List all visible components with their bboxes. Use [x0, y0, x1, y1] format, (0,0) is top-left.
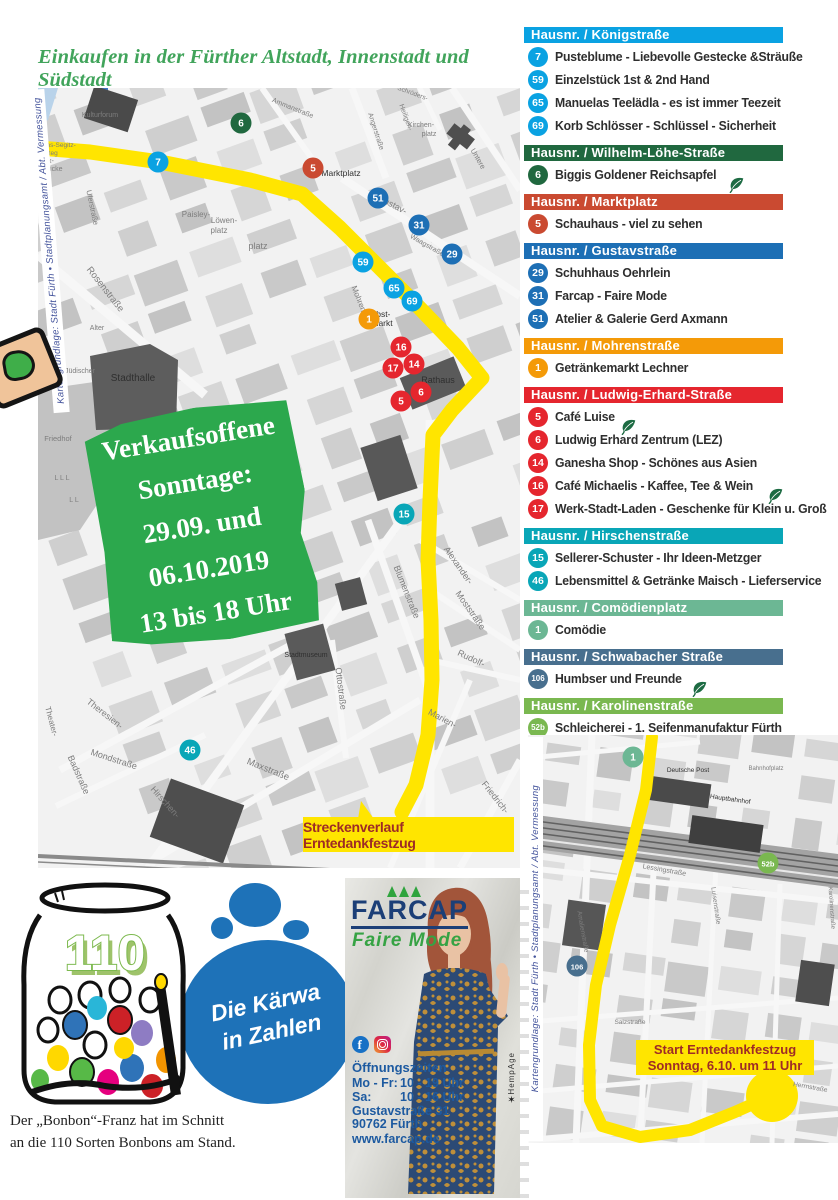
- map-marker: 6: [231, 113, 252, 134]
- legend-item-number: 16: [528, 476, 548, 496]
- street-label: L L: [69, 497, 79, 504]
- hemp-leaf-icon: ✶: [507, 1095, 515, 1106]
- svg-text:46: 46: [184, 746, 196, 757]
- promo-box: VerkaufsoffeneSonntage:29.09. und06.10.2…: [78, 393, 326, 658]
- legend-item: 7Pusteblume - Liebevolle Gestecke &Sträu…: [524, 45, 838, 68]
- map-marker: 14: [404, 354, 425, 375]
- legend-item-number: 106: [528, 669, 548, 689]
- legend-item-number: 14: [528, 453, 548, 473]
- station-map: Deutsche PostBahnhofplatzHauptbahnhofLes…: [528, 735, 838, 1143]
- legend-section-header: Hausnr. / Comödienplatz: [524, 600, 783, 616]
- map-marker: 59: [353, 252, 374, 273]
- map-credit-text: Kartengrundlage: Stadt Fürth • Stadtplan…: [530, 785, 541, 1092]
- legend-item-number: 51: [528, 309, 548, 329]
- map-marker: 65: [384, 278, 405, 299]
- map-marker: 15: [394, 504, 415, 525]
- map-marker: 51: [368, 188, 389, 209]
- legend-item: 17Werk-Stadt-Laden - Geschenke für Klein…: [524, 497, 838, 520]
- street-label: Alter: [90, 325, 105, 332]
- street-label: Stadthalle: [111, 373, 156, 384]
- street-label: platz: [248, 241, 268, 251]
- svg-text:65: 65: [388, 284, 400, 295]
- sidebar: Hausnr. / Königstraße7Pusteblume - Liebe…: [524, 27, 838, 739]
- map-marker: 1: [623, 747, 644, 768]
- caption-line2: an die 110 Sorten Bonbons am Stand.: [10, 1132, 236, 1154]
- legend-section-header: Hausnr. / Hirschenstraße: [524, 528, 783, 544]
- map-marker: 52b: [758, 853, 779, 874]
- svg-text:51: 51: [372, 194, 384, 205]
- legend-section-header: Hausnr. / Wilhelm-Löhe-Straße: [524, 145, 783, 161]
- legend-item: 69Korb Schlösser - Schlüssel - Sicherhei…: [524, 114, 838, 137]
- page-edge: [520, 878, 529, 1198]
- legend-item: 16Café Michaelis - Kaffee, Tee & Wein: [524, 474, 838, 497]
- legend-item-label: Einzelstück 1st & 2nd Hand: [555, 72, 710, 87]
- hempage-label: HempAge ✶: [507, 1052, 516, 1106]
- svg-text:52b: 52b: [762, 860, 775, 869]
- legend-item-number: 5: [528, 407, 548, 427]
- street-label: platz: [422, 131, 437, 138]
- svg-text:31: 31: [413, 221, 425, 232]
- legend-item: 65Manuelas Teelädla - es ist immer Teeze…: [524, 91, 838, 114]
- start-label-line2: Sonntag, 6.10. um 11 Uhr: [648, 1058, 803, 1074]
- street-label: Jüdischer: [65, 368, 96, 375]
- bonbon-jar-illustration: Die Kärwa in Zahlen: [0, 868, 360, 1118]
- legend-item: 14Ganesha Shop - Schönes aus Asien: [524, 451, 838, 474]
- hempage-brand-text: HempAge: [507, 1052, 516, 1095]
- social-icons: [352, 1036, 391, 1053]
- caption: Der „Bonbon“-Franz hat im Schnitt an die…: [10, 1110, 236, 1154]
- legend-item: 1Getränkemarkt Lechner: [524, 356, 838, 379]
- legend-item-number: 46: [528, 571, 548, 591]
- legend-item: 106Humbser und Freunde: [524, 667, 838, 690]
- map-marker: 29: [442, 244, 463, 265]
- legend-item-number: 7: [528, 47, 548, 67]
- legend-item-number: 69: [528, 116, 548, 136]
- legend-item-number: 59: [528, 70, 548, 90]
- legend-item-label: Schleicherei - 1. Seifenmanufaktur Fürth: [555, 720, 782, 735]
- legend-item: 5Schauhaus - viel zu sehen: [524, 212, 838, 235]
- legend-item-label: Getränkemarkt Lechner: [555, 360, 688, 375]
- legend-item-number: 6: [528, 165, 548, 185]
- instagram-icon[interactable]: [374, 1036, 391, 1053]
- route-start-point: [746, 1070, 798, 1122]
- legend-item-label: Comödie: [555, 622, 606, 637]
- street-label: Kulturforum: [82, 112, 118, 119]
- farcap-website[interactable]: www.farcap.de: [352, 1132, 440, 1146]
- legend-item-label: Schuhhaus Oehrlein: [555, 265, 670, 280]
- svg-text:7: 7: [155, 158, 161, 169]
- legend-item-label: Ludwig Erhard Zentrum (LEZ): [555, 432, 722, 447]
- legend-section-header: Hausnr. / Königstraße: [524, 27, 783, 43]
- start-label-line1: Start Erntedankfestzug: [654, 1042, 796, 1058]
- legend-item: 31Farcap - Faire Mode: [524, 284, 838, 307]
- map-marker: 17: [383, 358, 404, 379]
- svg-text:1: 1: [366, 315, 372, 326]
- street-label: Marktplatz: [321, 168, 360, 178]
- legend-item-number: 15: [528, 548, 548, 568]
- hours-row: Mo - Fr:10 - 19 Uhr: [352, 1076, 464, 1090]
- street-label: L L L: [54, 475, 69, 482]
- legend-item-label: Pusteblume - Liebevolle Gestecke &Sträuß…: [555, 49, 803, 64]
- hours-time: 10 - 19 Uhr: [400, 1076, 464, 1090]
- map-marker: 31: [409, 215, 430, 236]
- bonbon-jar: 110 110: [24, 885, 183, 1102]
- hours-title: Öffnungszeiten: [352, 1060, 447, 1075]
- map-marker: 16: [391, 337, 412, 358]
- map-marker: 1: [359, 309, 380, 330]
- svg-text:17: 17: [387, 364, 399, 375]
- legend-item: 46Lebensmittel & Getränke Maisch - Liefe…: [524, 569, 838, 592]
- legend-item-label: Ganesha Shop - Schönes aus Asien: [555, 455, 757, 470]
- page-title: Einkaufen in der Fürther Altstadt, Innen…: [38, 46, 528, 92]
- map-marker: 5: [303, 158, 324, 179]
- legend-item-label: Lebensmittel & Getränke Maisch - Liefers…: [555, 573, 821, 588]
- farcap-tagline: Faire Mode: [352, 930, 462, 952]
- legend-item-label: Café Luise: [555, 409, 615, 424]
- legend-item-number: 1: [528, 620, 548, 640]
- route-label: Streckenverlauf Erntedankfestzug: [303, 817, 514, 852]
- svg-text:6: 6: [238, 119, 244, 130]
- street-label: platz: [211, 226, 228, 235]
- legend-section-header: Hausnr. / Mohrenstraße: [524, 338, 783, 354]
- street-label: Stadtmuseum: [284, 652, 327, 659]
- map-marker: 6: [411, 382, 432, 403]
- street-label: Paisley-: [182, 210, 211, 219]
- legend-item-label: Sellerer-Schuster - Ihr Ideen-Metzger: [555, 550, 761, 565]
- legend-section-header: Hausnr. / Karolinenstraße: [524, 698, 783, 714]
- legend-item-label: Café Michaelis - Kaffee, Tee & Wein: [555, 478, 753, 493]
- map-marker: 69: [402, 291, 423, 312]
- svg-text:59: 59: [357, 258, 369, 269]
- svg-text:1: 1: [630, 753, 636, 764]
- legend-section-header: Hausnr. / Schwabacher Straße: [524, 649, 783, 665]
- flyer-page: Einkaufen in der Fürther Altstadt, Innen…: [0, 0, 838, 1200]
- kaerwa-number: 110: [65, 925, 146, 981]
- legend-item: 5Café Luise: [524, 405, 838, 428]
- map-marker: 106: [567, 956, 588, 977]
- legend-item: 59Einzelstück 1st & 2nd Hand: [524, 68, 838, 91]
- map-marker: 46: [180, 740, 201, 761]
- legend-item: 1Comödie: [524, 618, 838, 641]
- legend-item-number: 6: [528, 430, 548, 450]
- svg-text:14: 14: [408, 360, 420, 371]
- street-label: Salzstraße: [614, 1019, 645, 1026]
- legend-section-header: Hausnr. / Marktplatz: [524, 194, 783, 210]
- legend-item: 15Sellerer-Schuster - Ihr Ideen-Metzger: [524, 546, 838, 569]
- farcap-address-city: 90762 Fürth: [352, 1117, 422, 1131]
- hours-days: Sa:: [352, 1090, 400, 1104]
- facebook-icon[interactable]: [352, 1036, 369, 1053]
- legend-item-label: Manuelas Teelädla - es ist immer Teezeit: [555, 95, 781, 110]
- svg-text:6: 6: [418, 388, 424, 399]
- farcap-logo: FARCAP: [351, 895, 468, 929]
- svg-text:5: 5: [310, 164, 316, 175]
- legend-item-label: Atelier & Galerie Gerd Axmann: [555, 311, 728, 326]
- map-marker: 5: [391, 391, 412, 412]
- hours-time: 10 - 16 Uhr: [400, 1090, 464, 1104]
- svg-text:69: 69: [406, 297, 418, 308]
- legend-item-number: 17: [528, 499, 548, 519]
- hours-days: Mo - Fr:: [352, 1076, 400, 1090]
- start-label: Start Erntedankfestzug Sonntag, 6.10. um…: [636, 1040, 814, 1075]
- legend-item: 51Atelier & Galerie Gerd Axmann: [524, 307, 838, 330]
- legend-item: 6Biggis Goldener Reichsapfel: [524, 163, 838, 186]
- hours-row: Sa:10 - 16 Uhr: [352, 1090, 464, 1104]
- svg-text:106: 106: [571, 963, 584, 972]
- legend-item-number: 5: [528, 214, 548, 234]
- street-label: Deutsche Post: [667, 767, 709, 774]
- legend-item: 29Schuhhaus Oehrlein: [524, 261, 838, 284]
- street-label: Bahnhofplatz: [748, 766, 783, 772]
- svg-text:29: 29: [446, 250, 458, 261]
- svg-text:16: 16: [395, 343, 407, 354]
- legend-item: 6Ludwig Erhard Zentrum (LEZ): [524, 428, 838, 451]
- legend-item-label: Schauhaus - viel zu sehen: [555, 216, 702, 231]
- legend-item-label: Farcap - Faire Mode: [555, 288, 667, 303]
- legend-item-number: 65: [528, 93, 548, 113]
- street-label: Löwen-: [211, 216, 238, 225]
- street-label: Kirchen-: [408, 122, 435, 129]
- clover-icon: [1, 348, 38, 383]
- legend-section-header: Hausnr. / Gustavstraße: [524, 243, 783, 259]
- legend-item-label: Korb Schlösser - Schlüssel - Sicherheit: [555, 118, 776, 133]
- legend-item-number: 29: [528, 263, 548, 283]
- station-map-credit: Kartengrundlage: Stadt Fürth • Stadtplan…: [528, 737, 543, 1141]
- legend-item-label: Werk-Stadt-Laden - Geschenke für Klein u…: [555, 501, 827, 516]
- farcap-address-street: Gustavstraße 31: [352, 1104, 449, 1118]
- legend-section-header: Hausnr. / Ludwig-Erhard-Straße: [524, 387, 783, 403]
- legend-item-number: 1: [528, 358, 548, 378]
- legend-item-label: Humbser und Freunde: [555, 671, 682, 686]
- svg-text:15: 15: [398, 510, 410, 521]
- svg-text:5: 5: [398, 397, 404, 408]
- legend-item-number: 31: [528, 286, 548, 306]
- farcap-ad: FARCAP Faire Mode Öffnungszeiten Mo - Fr…: [345, 878, 520, 1198]
- street-label: Friedhof: [44, 434, 72, 443]
- legend-item-label: Biggis Goldener Reichsapfel: [555, 167, 716, 182]
- map-marker: 7: [148, 152, 169, 173]
- hours-rows: Mo - Fr:10 - 19 UhrSa:10 - 16 Uhr: [352, 1076, 464, 1104]
- caption-line1: Der „Bonbon“-Franz hat im Schnitt: [10, 1110, 236, 1132]
- kaerwa-blob: Die Kärwa in Zahlen: [180, 883, 356, 1104]
